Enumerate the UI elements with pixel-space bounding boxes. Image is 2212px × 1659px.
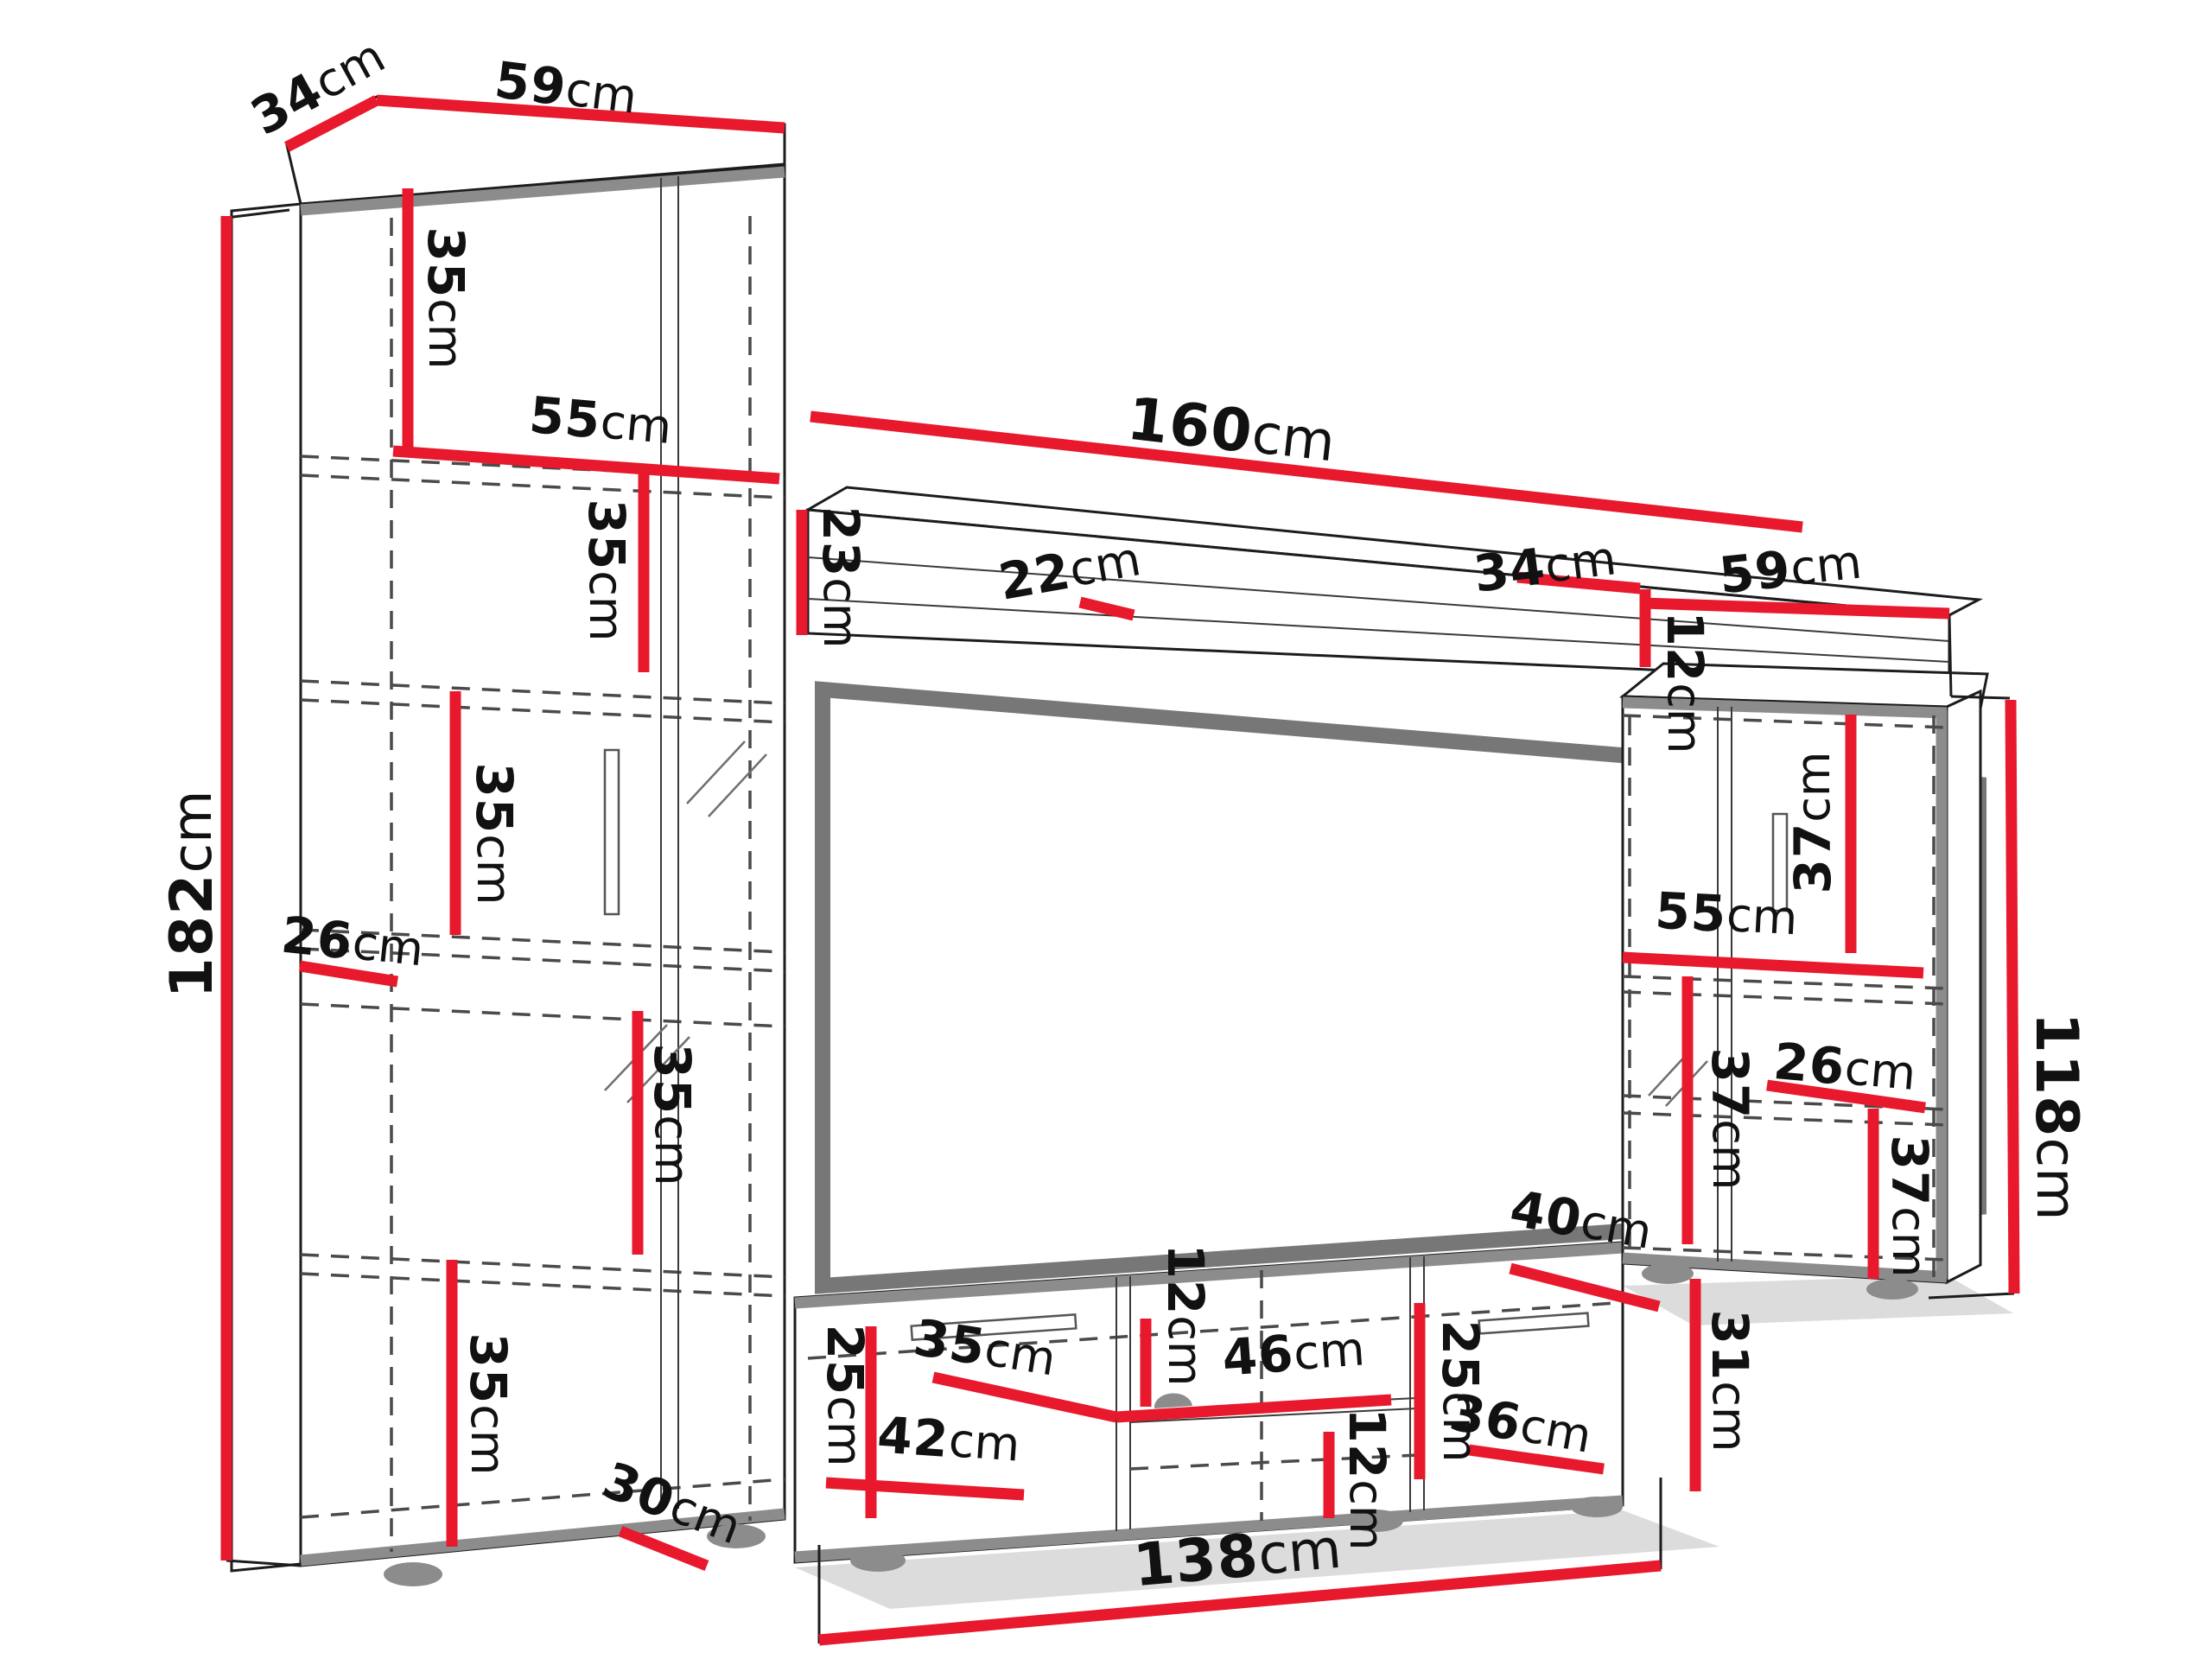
dim-label-left-sec1-height: 35cm bbox=[416, 226, 475, 369]
stand-foot bbox=[1571, 1497, 1623, 1517]
dim-label-stand-shelf-gap: 12cm bbox=[1156, 1243, 1215, 1386]
dim-label-left-sec3-height: 35cm bbox=[465, 762, 524, 905]
right-cabinet-foot bbox=[1866, 1279, 1918, 1300]
dim-label-stand-niche-gap: 12cm bbox=[1338, 1408, 1396, 1550]
dim-label-right-door-height: 31cm bbox=[1700, 1309, 1759, 1452]
dim-label-left-sec5-height: 35cm bbox=[643, 1043, 702, 1185]
dim-label-right-inner-width: 55cm bbox=[1654, 881, 1799, 948]
left-cabinet-front-face bbox=[301, 166, 785, 1566]
dim-label-left-sec2-height: 35cm bbox=[577, 499, 636, 641]
furniture-dimension-diagram: 34cm 59cm 35cm 55cm 35cm 35cm 26cm 35cm … bbox=[0, 0, 2212, 1659]
dim-line-right-height bbox=[2011, 700, 2014, 1294]
left-cabinet-foot bbox=[384, 1562, 442, 1586]
stand-foot bbox=[850, 1549, 906, 1572]
right-cabinet-foot bbox=[1642, 1263, 1694, 1284]
dim-label-left-sec6-height: 35cm bbox=[459, 1332, 518, 1475]
dim-label-right-sec1-height: 37cm bbox=[1783, 751, 1842, 893]
dim-label-shelf-height: 23cm bbox=[811, 505, 870, 648]
left-cabinet-side-face bbox=[232, 204, 301, 1571]
dim-label-stand-left-height: 25cm bbox=[816, 1324, 874, 1466]
dim-label-bridge-height: 12cm bbox=[1656, 611, 1714, 753]
left-cabinet-door-handle bbox=[605, 750, 619, 914]
dim-label-left-height: 182cm bbox=[158, 791, 226, 999]
dim-label-stand-drawer-width: 42cm bbox=[875, 1405, 1021, 1473]
dim-label-right-sec2-height: 37cm bbox=[1700, 1047, 1759, 1190]
dim-label-shelf-width: 160cm bbox=[1124, 385, 1338, 476]
dim-label-right-sec3-height: 37cm bbox=[1880, 1135, 1939, 1277]
right-cabinet-shadow bbox=[1623, 1275, 2013, 1325]
dim-label-right-height: 118cm bbox=[2023, 1013, 2091, 1221]
diagram-canvas: 34cm 59cm 35cm 55cm 35cm 35cm 26cm 35cm … bbox=[0, 0, 2212, 1659]
right-cabinet-side-face bbox=[1947, 691, 1980, 1282]
